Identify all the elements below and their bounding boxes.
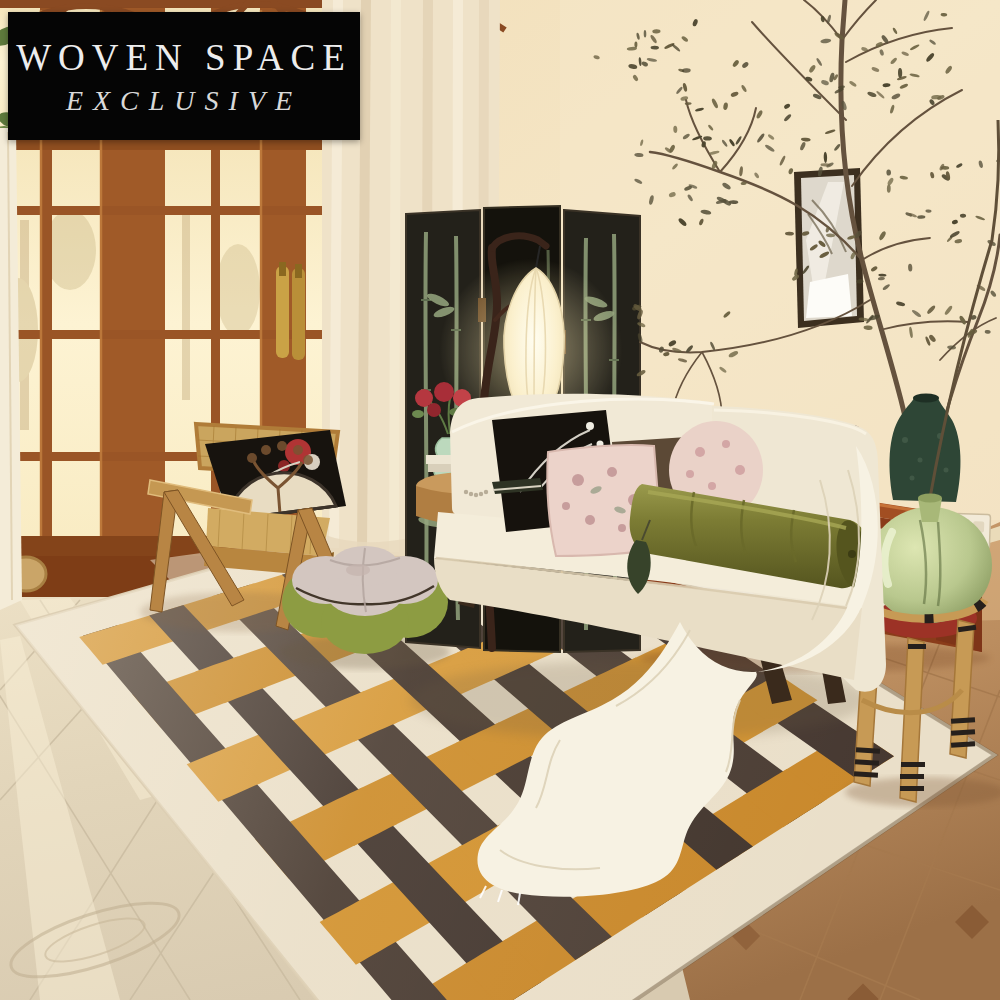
brand-tagline: EXCLUSIVE	[8, 85, 360, 117]
brand-overlay: WOVEN SPACE EXCLUSIVE	[8, 12, 360, 140]
scene-illustration	[0, 0, 1000, 1000]
wall-mirror	[794, 168, 864, 328]
living-room-product-photo: WOVEN SPACE EXCLUSIVE	[0, 0, 1000, 1000]
brand-name: WOVEN SPACE	[8, 36, 360, 79]
